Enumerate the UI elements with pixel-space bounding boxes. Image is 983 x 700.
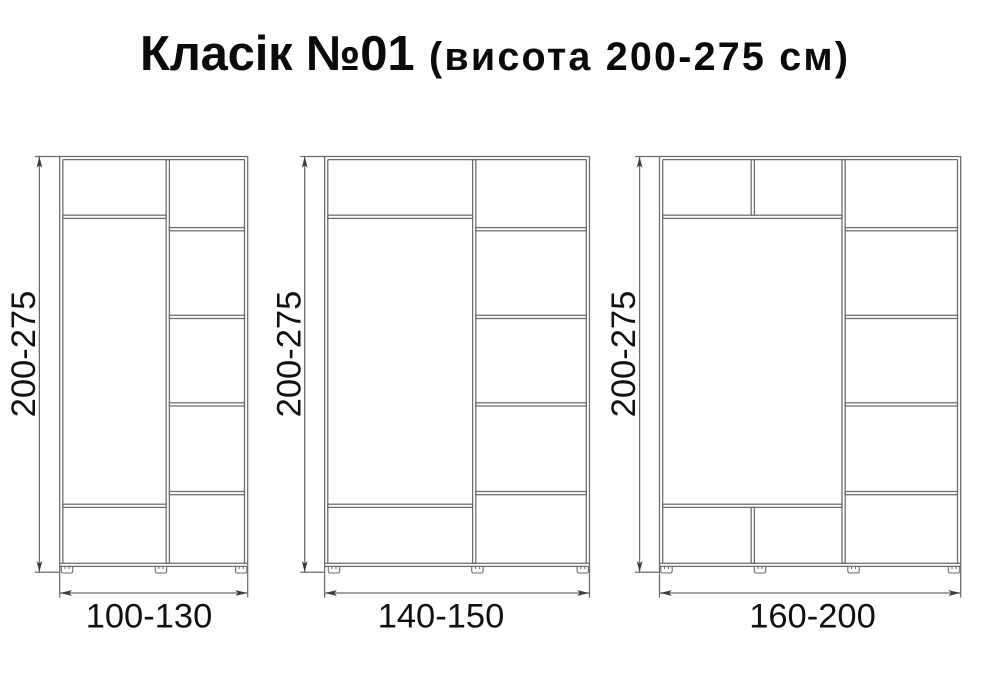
svg-text:140-150: 140-150 <box>378 598 505 636</box>
svg-text:100-130: 100-130 <box>86 598 213 636</box>
svg-text:200-275: 200-275 <box>5 291 43 418</box>
svg-text:200-275: 200-275 <box>605 291 643 418</box>
svg-text:Класік №01(висота 200-275 см): Класік №01(висота 200-275 см) <box>140 27 850 81</box>
svg-text:160-200: 160-200 <box>749 598 876 636</box>
svg-text:200-275: 200-275 <box>270 291 308 418</box>
